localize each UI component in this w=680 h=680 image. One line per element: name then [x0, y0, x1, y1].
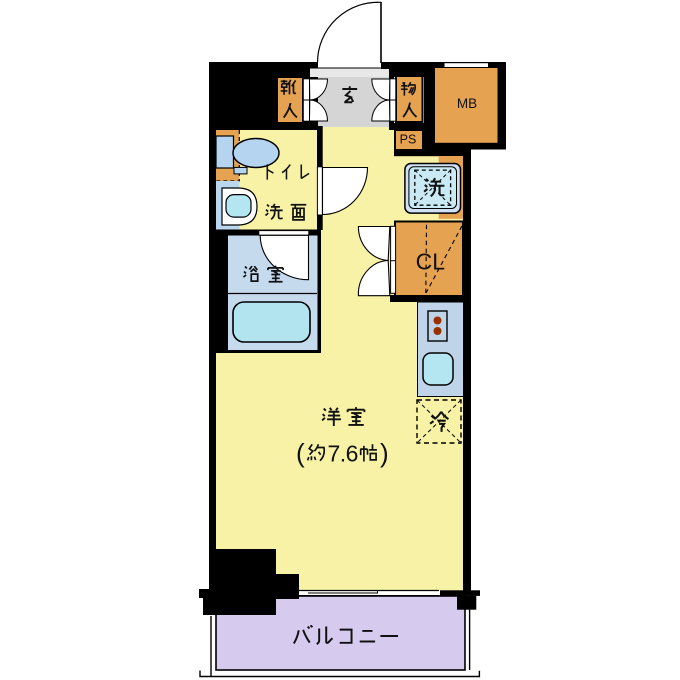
svg-text:MB: MB [457, 96, 477, 111]
svg-text:PS: PS [400, 133, 417, 147]
svg-text:7.6: 7.6 [328, 441, 358, 467]
svg-text:CL: CL [416, 249, 446, 275]
svg-text:): ) [380, 438, 389, 468]
svg-text:(: ( [296, 438, 305, 468]
